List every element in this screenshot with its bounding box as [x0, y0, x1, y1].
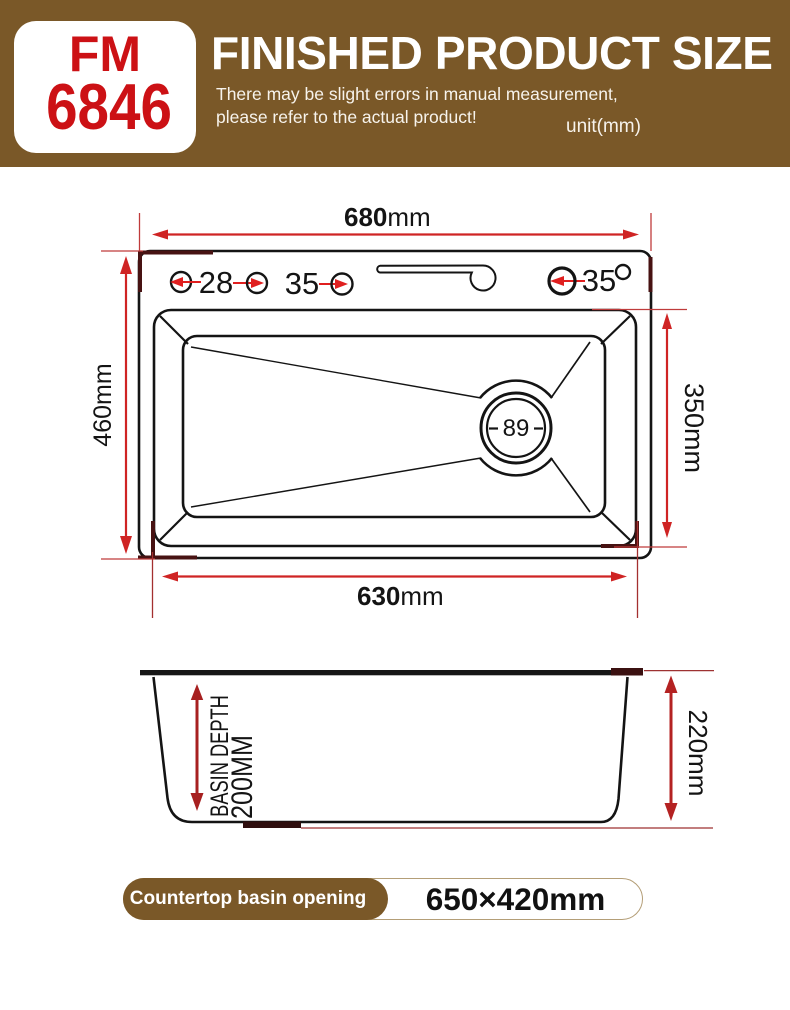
svg-text:460mm: 460mm — [89, 363, 117, 446]
svg-text:350mm: 350mm — [679, 383, 709, 473]
svg-text:35: 35 — [582, 263, 616, 298]
svg-text:220mm: 220mm — [683, 710, 713, 797]
svg-text:28: 28 — [199, 265, 233, 300]
svg-text:200MM: 200MM — [225, 735, 259, 819]
svg-text:680mm: 680mm — [344, 202, 431, 232]
svg-text:35: 35 — [285, 266, 319, 301]
svg-text:89: 89 — [503, 415, 530, 442]
svg-text:630mm: 630mm — [357, 581, 444, 611]
